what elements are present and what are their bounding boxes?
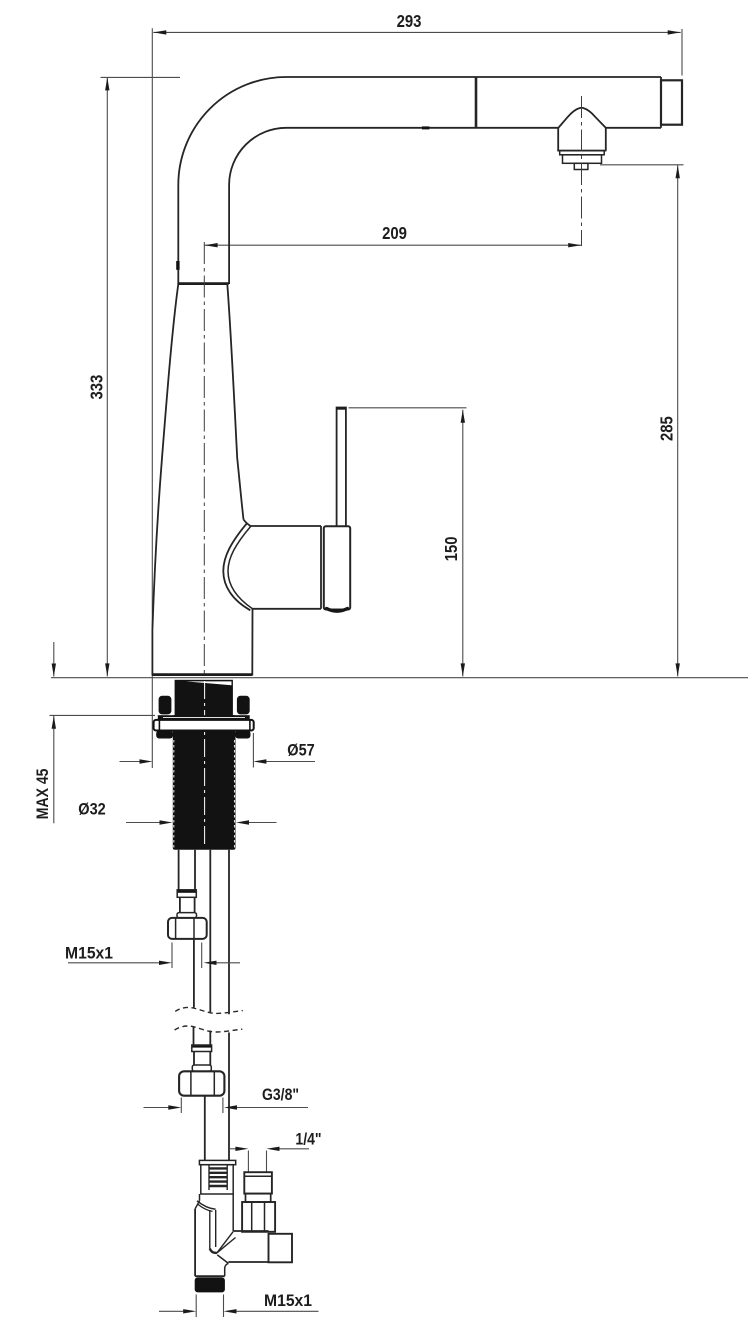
- svg-text:209: 209: [382, 224, 407, 243]
- svg-text:M15x1: M15x1: [264, 1292, 312, 1310]
- svg-text:M15x1: M15x1: [65, 944, 113, 962]
- svg-text:333: 333: [87, 375, 106, 400]
- svg-text:Ø32: Ø32: [78, 801, 106, 819]
- svg-text:293: 293: [397, 12, 422, 31]
- svg-text:1/4": 1/4": [295, 1130, 321, 1148]
- svg-text:150: 150: [442, 536, 461, 561]
- svg-text:Ø57: Ø57: [287, 741, 314, 759]
- svg-text:G3/8": G3/8": [262, 1086, 299, 1104]
- svg-text:285: 285: [658, 416, 677, 441]
- svg-text:MAX 45: MAX 45: [34, 768, 52, 819]
